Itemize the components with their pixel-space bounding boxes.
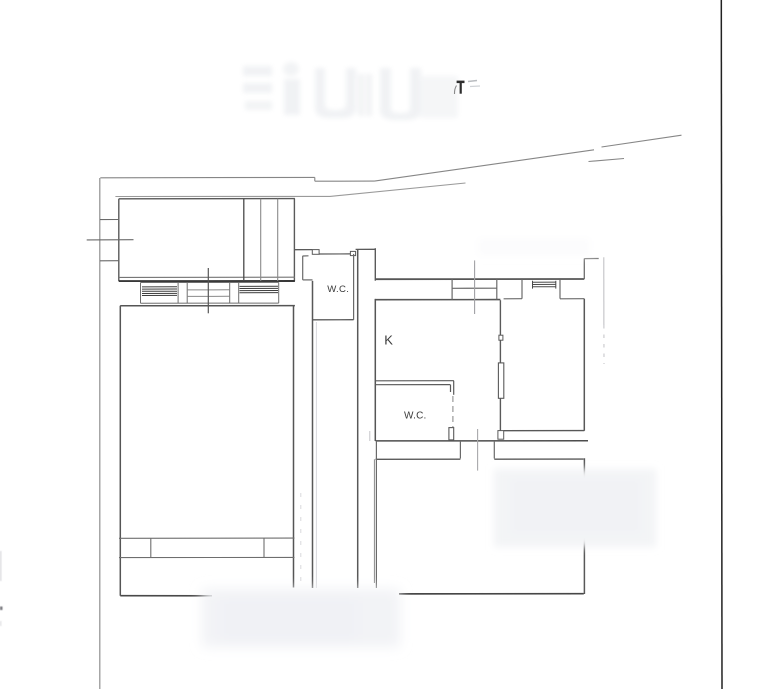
svg-text:K: K [384, 332, 393, 347]
svg-text:W.C.: W.C. [327, 284, 349, 295]
svg-text:W.C.: W.C. [404, 410, 426, 421]
